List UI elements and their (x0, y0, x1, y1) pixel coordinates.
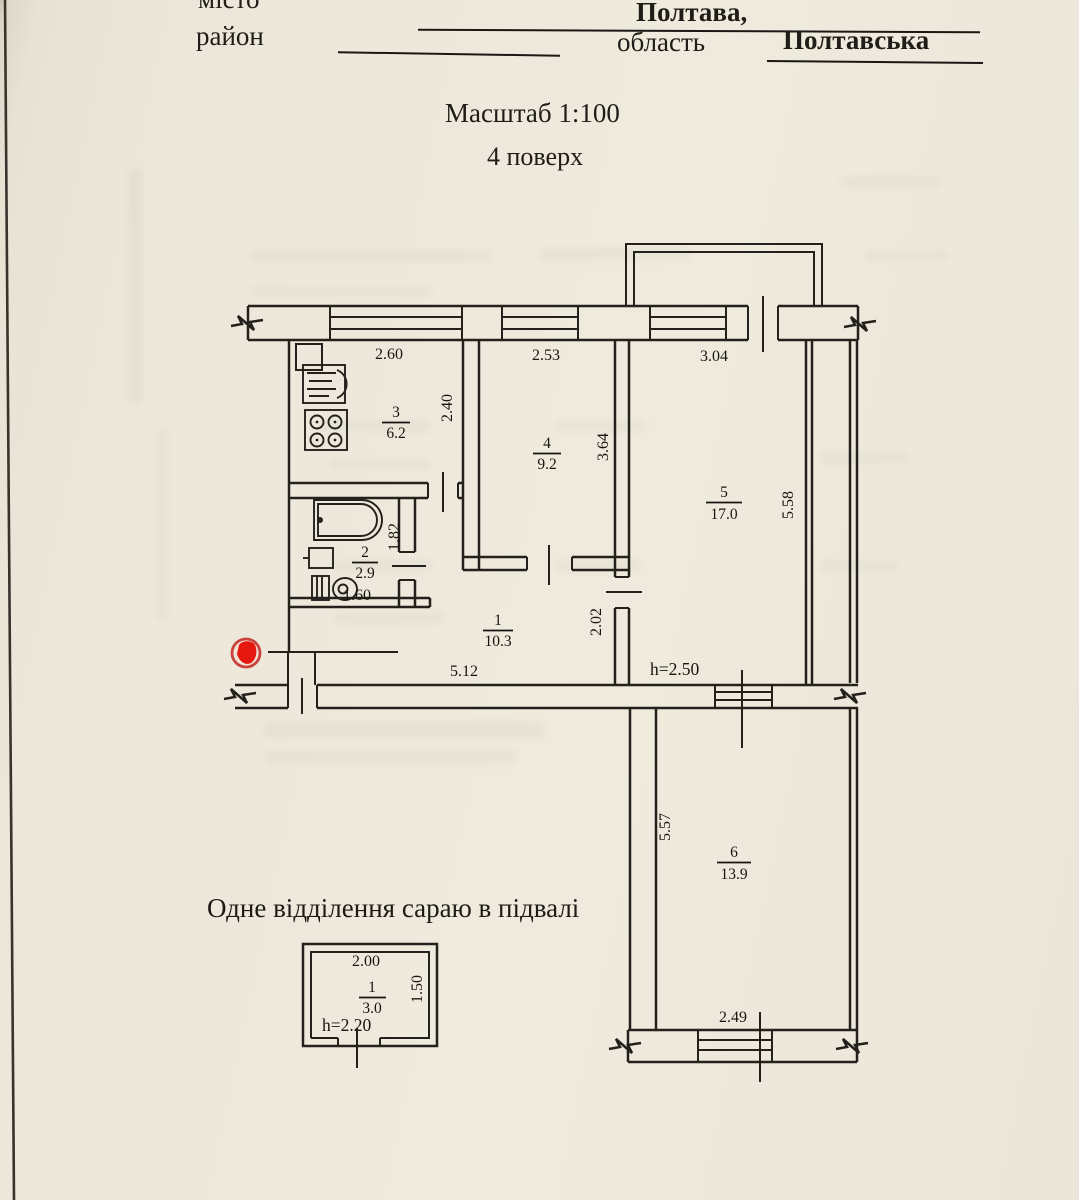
dim-room5-width: 3.04 (700, 348, 728, 365)
top-exterior-wall (248, 296, 858, 352)
room-label-2: 2 2.9 (352, 544, 378, 582)
svg-text:1: 1 (494, 612, 502, 629)
dim-room4-width: 2.53 (532, 347, 560, 364)
room-label-6: 6 13.9 (717, 844, 751, 883)
dim-kitchen-width: 2.60 (375, 346, 403, 363)
middle-exterior-wall (235, 670, 858, 748)
svg-text:10.3: 10.3 (484, 633, 511, 650)
apartment-plan: 2.60 2.40 2.53 3.64 3.04 5.58 1.60 1.82 … (224, 244, 876, 1082)
bathtub (314, 500, 382, 540)
ceiling-height-note: h=2.50 (650, 659, 699, 679)
basement-room-label: 1 3.0 (359, 979, 386, 1017)
dim-room6-width: 2.49 (719, 1009, 747, 1026)
room-label-1: 1 10.3 (483, 612, 513, 650)
basement-shed-plan: 2.00 1.50 1 3.0 h=2.20 (303, 944, 437, 1068)
hall-room5-partition (606, 340, 642, 686)
svg-text:5: 5 (720, 484, 728, 501)
room-label-5: 5 17.0 (706, 484, 742, 523)
dim-room4-depth: 3.64 (595, 433, 612, 461)
basement-dim-depth: 1.50 (409, 975, 426, 1003)
floor-plan-drawing: 2.60 2.40 2.53 3.64 3.04 5.58 1.60 1.82 … (0, 0, 1079, 1200)
svg-text:2: 2 (361, 544, 369, 561)
dim-room5-depth: 5.58 (780, 491, 797, 519)
svg-text:3: 3 (392, 404, 400, 421)
scanned-page: місто район Полтава, область Полтавська … (0, 0, 1079, 1200)
svg-text:4: 4 (543, 435, 551, 452)
svg-text:6.2: 6.2 (386, 425, 405, 442)
bathroom-sink (303, 548, 333, 568)
kitchen-stove (305, 410, 347, 450)
entry-closet (268, 652, 398, 685)
basement-dim-width: 2.00 (352, 953, 380, 970)
svg-text:9.2: 9.2 (537, 456, 556, 473)
svg-text:6: 6 (730, 844, 738, 861)
dim-room6-depth: 5.57 (657, 813, 674, 841)
dim-hallway-width: 2.02 (588, 608, 605, 636)
dim-bathroom-width: 1.60 (343, 587, 371, 604)
dim-bathroom-depth: 1.82 (386, 523, 403, 551)
room-label-3: 3 6.2 (382, 404, 410, 442)
red-entrance-marker (232, 639, 260, 667)
basement-ceiling-height-note: h=2.20 (322, 1015, 371, 1035)
svg-text:2.9: 2.9 (355, 565, 375, 582)
svg-text:17.0: 17.0 (710, 506, 737, 523)
room5-right-wall (806, 340, 812, 686)
page-edge-line (5, 0, 14, 1200)
svg-text:13.9: 13.9 (720, 866, 747, 883)
svg-text:1: 1 (368, 979, 376, 996)
dim-kitchen-depth: 2.40 (439, 394, 456, 422)
balcony-outline (626, 244, 822, 306)
dim-hallway-length: 5.12 (450, 663, 478, 680)
room-label-4: 4 9.2 (533, 435, 561, 473)
vent-shaft (296, 344, 322, 370)
room4-bottom-wall (463, 545, 629, 585)
